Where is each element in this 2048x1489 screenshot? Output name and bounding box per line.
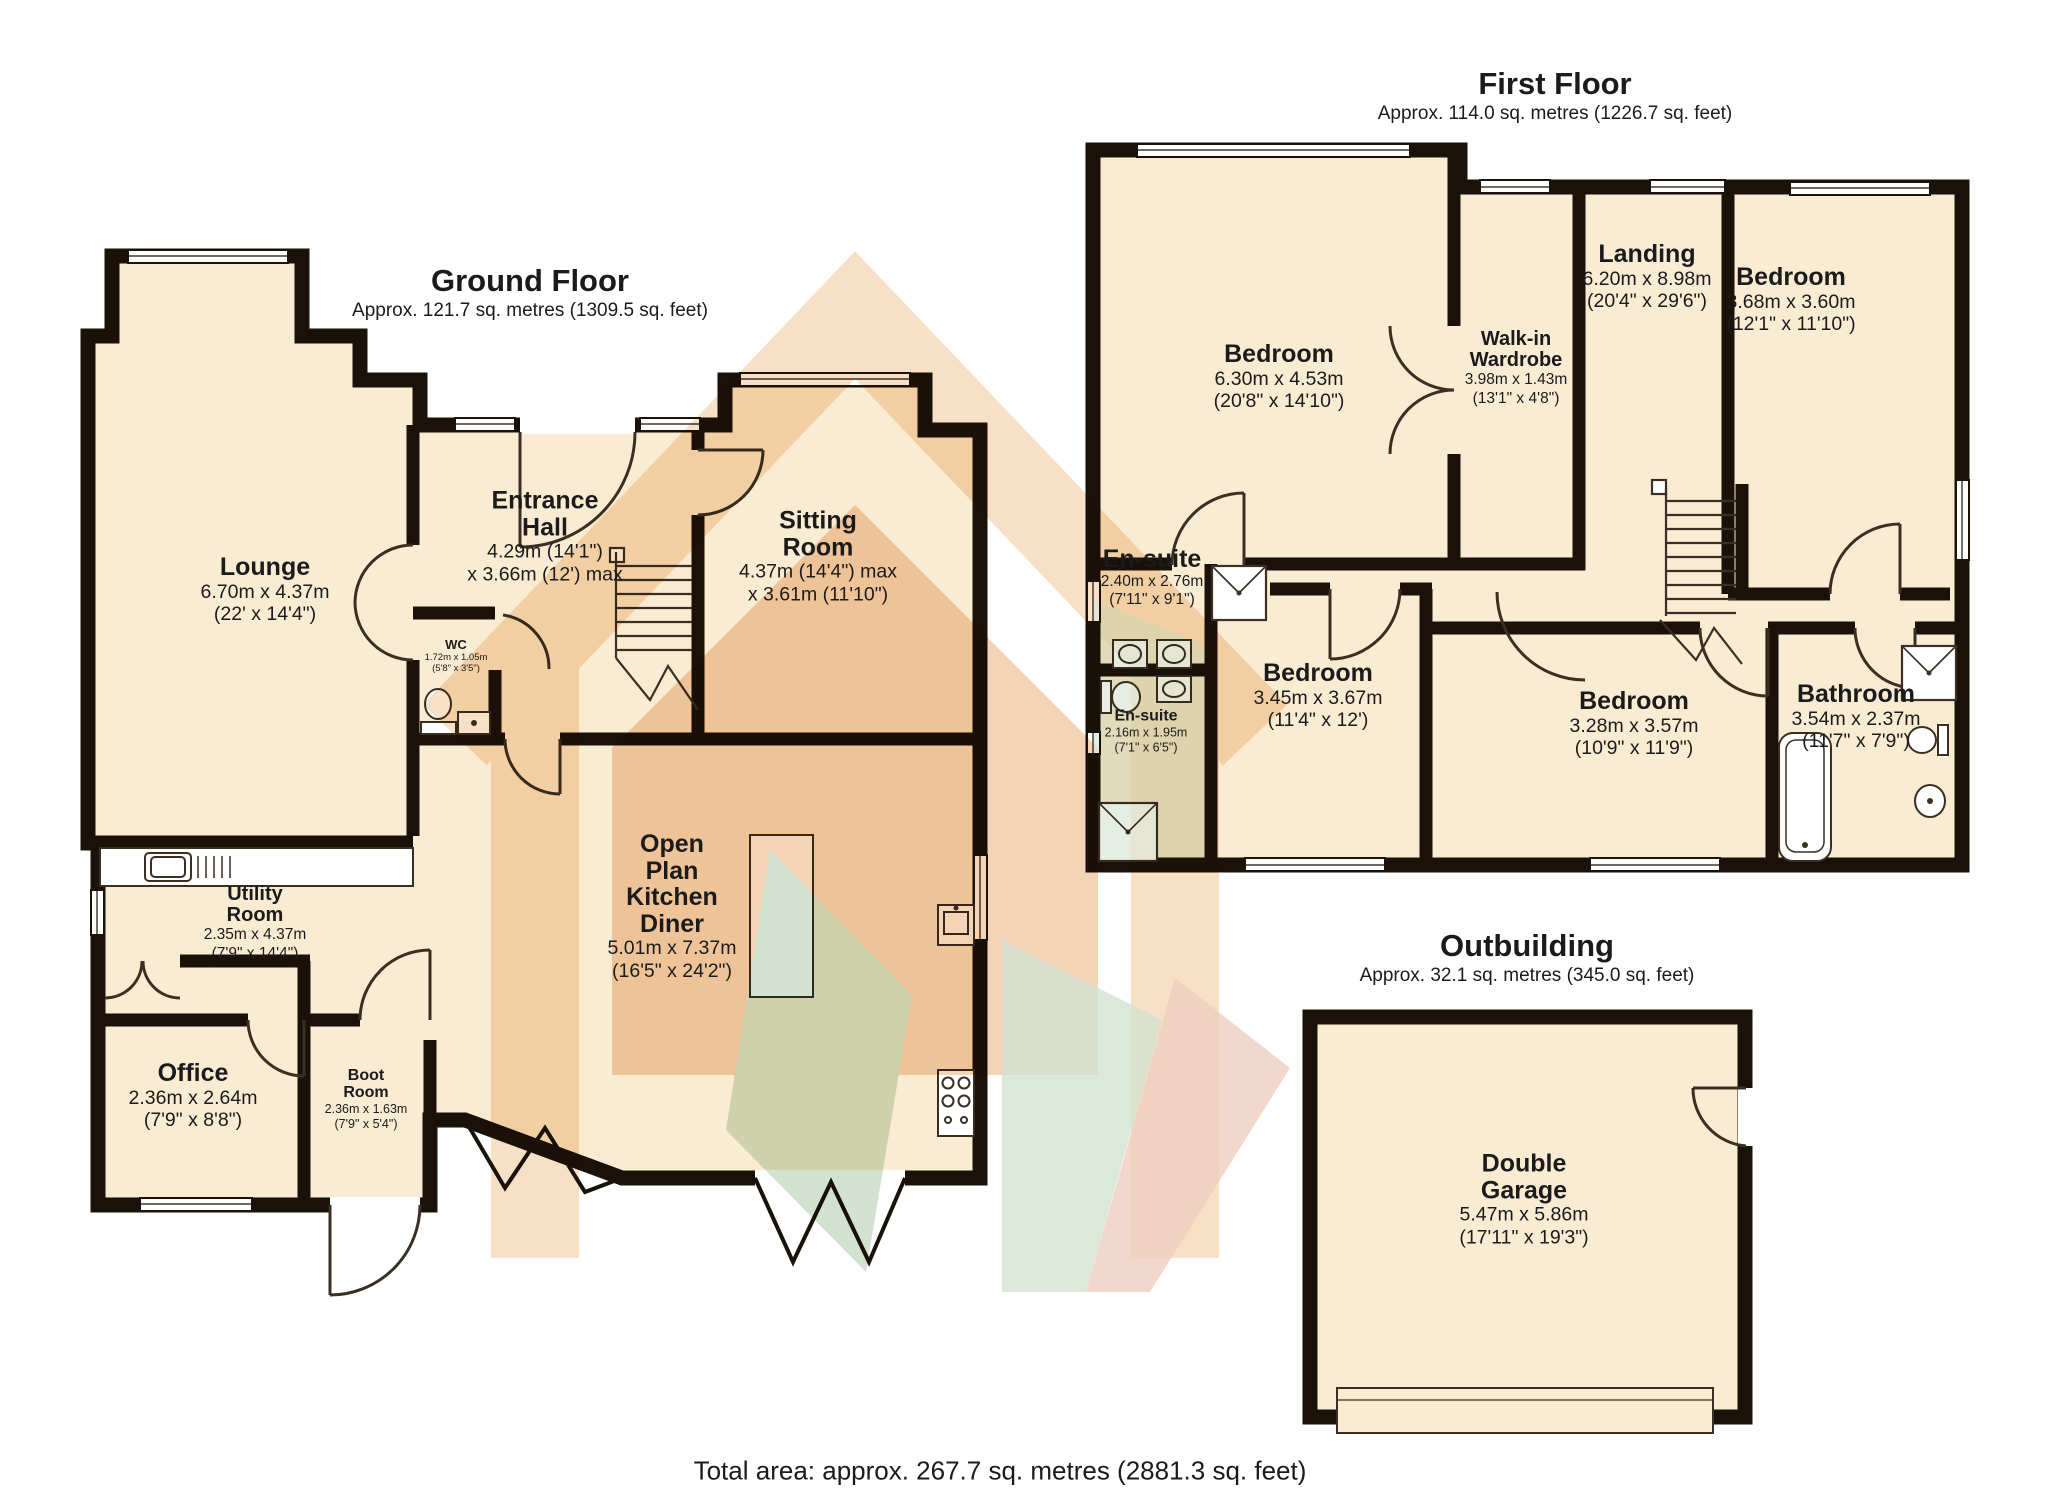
- room-label-bathroom: Bathroom 3.54m x 2.37m (11'7" x 7'9"): [1792, 681, 1921, 753]
- room-dim-imperial: (5'8" x 3'5"): [432, 663, 480, 674]
- room-name: Utility Room: [210, 884, 300, 926]
- room-name: Walk-in Wardrobe: [1461, 329, 1571, 371]
- room-dim-metric: 6.30m x 4.53m: [1215, 367, 1344, 390]
- room-name: En-suite: [1103, 546, 1202, 573]
- first-floor-title: First Floor Approx. 114.0 sq. metres (12…: [1378, 66, 1733, 126]
- room-name: En-suite: [1114, 709, 1177, 726]
- floorplan-page: Ground Floor Approx. 121.7 sq. metres (1…: [0, 0, 2048, 1489]
- room-label-landing: Landing 6.20m x 8.98m (20'4" x 29'6"): [1583, 241, 1712, 313]
- room-dim-metric: 1.72m x 1.05m: [425, 651, 488, 662]
- room-dim-metric: 2.16m x 1.95m: [1105, 725, 1188, 740]
- garage-door: [1337, 1388, 1713, 1433]
- outbuilding-title: Outbuilding Approx. 32.1 sq. metres (345…: [1360, 928, 1695, 988]
- floor-title-text: Outbuilding: [1440, 928, 1614, 964]
- room-name: Lounge: [220, 554, 310, 581]
- floor-subtitle-text: Approx. 32.1 sq. metres (345.0 sq. feet): [1360, 963, 1695, 988]
- room-dim-metric: 2.40m x 2.76m: [1101, 573, 1204, 592]
- room-dim-metric: 5.47m x 5.86m: [1460, 1204, 1589, 1227]
- room-dim-metric: 6.20m x 8.98m: [1583, 267, 1712, 290]
- room-dim-imperial: (10'9" x 11'9"): [1575, 737, 1694, 760]
- garage-door-opening: [1738, 1088, 1754, 1146]
- room-dim-metric: 3.28m x 3.57m: [1570, 714, 1699, 737]
- room-dim-metric: 5.01m x 7.37m: [608, 937, 737, 960]
- room-name: Bedroom: [1736, 264, 1846, 291]
- room-label-sitting-room: Sitting Room 4.37m (14'4") max x 3.61m (…: [739, 508, 897, 607]
- room-dim-metric: 2.36m x 2.64m: [129, 1086, 258, 1109]
- room-label-bedroom1: Bedroom 6.30m x 4.53m (20'8" x 14'10"): [1214, 341, 1345, 413]
- room-dim-metric: 2.36m x 1.63m: [325, 1102, 408, 1117]
- room-dim-metric: 3.98m x 1.43m: [1465, 372, 1568, 391]
- utility-counter: [100, 848, 413, 886]
- room-dim-imperial: x 3.61m (11'10"): [748, 584, 888, 607]
- room-name: Office: [158, 1060, 229, 1087]
- room-name: Open Plan Kitchen Diner: [619, 831, 724, 937]
- floor-subtitle-text: Approx. 114.0 sq. metres (1226.7 sq. fee…: [1378, 101, 1733, 126]
- room-label-bedroom3: Bedroom 3.45m x 3.67m (11'4" x 12'): [1254, 660, 1383, 732]
- room-label-bedroom2: Bedroom 3.68m x 3.60m (12'1" x 11'10"): [1726, 264, 1855, 336]
- floorplan-drawing: [0, 0, 2048, 1489]
- room-dim-imperial: (20'8" x 14'10"): [1214, 390, 1345, 413]
- room-dim-imperial: x 3.66m (12') max: [467, 564, 622, 587]
- room-dim-imperial: (11'7" x 7'9"): [1802, 730, 1910, 753]
- ground-floor-title: Ground Floor Approx. 121.7 sq. metres (1…: [352, 263, 708, 323]
- floor-title-text: Ground Floor: [431, 263, 629, 299]
- room-name: Bedroom: [1224, 341, 1334, 368]
- room-name: Boot Room: [336, 1068, 396, 1102]
- room-dim-imperial: (12'1" x 11'10"): [1726, 313, 1855, 336]
- room-dim-imperial: (7'11" x 9'1"): [1109, 591, 1195, 610]
- room-label-bedroom4: Bedroom 3.28m x 3.57m (10'9" x 11'9"): [1570, 688, 1699, 760]
- room-dim-metric: 3.45m x 3.67m: [1254, 686, 1383, 709]
- room-label-utility: Utility Room 2.35m x 4.37m (7'9" x 14'4"…: [204, 884, 307, 964]
- room-dim-metric: 4.37m (14'4") max: [739, 561, 897, 584]
- room-dim-imperial: (17'11" x 19'3"): [1459, 1227, 1588, 1250]
- room-dim-imperial: (20'4" x 29'6"): [1587, 290, 1707, 313]
- floor-subtitle-text: Approx. 121.7 sq. metres (1309.5 sq. fee…: [352, 298, 708, 323]
- boot-exterior-door: [330, 1205, 420, 1295]
- room-name: Bedroom: [1579, 688, 1689, 715]
- room-name: Bathroom: [1797, 681, 1915, 708]
- total-area-text: Total area: approx. 267.7 sq. metres (28…: [694, 1456, 1307, 1487]
- room-name: Sitting Room: [763, 508, 873, 561]
- room-dim-metric: 6.70m x 4.37m: [201, 580, 330, 603]
- room-label-garage: Double Garage 5.47m x 5.86m (17'11" x 19…: [1459, 1151, 1588, 1250]
- room-dim-imperial: (7'9" x 14'4"): [212, 945, 299, 964]
- boot-door-opening: [330, 1197, 420, 1214]
- room-dim-imperial: (13'1" x 4'8"): [1473, 390, 1560, 409]
- room-label-ensuite1: En-suite 2.40m x 2.76m (7'11" x 9'1"): [1101, 546, 1204, 610]
- room-dim-metric: 4.29m (14'1"): [487, 541, 603, 564]
- toilet: [1938, 725, 1948, 755]
- room-dim-imperial: (7'9" x 5'4"): [335, 1117, 398, 1132]
- room-dim-imperial: (7'1" x 6'5"): [1115, 740, 1178, 755]
- room-name: Landing: [1598, 241, 1695, 268]
- room-dim-imperial: (16'5" x 24'2"): [612, 960, 732, 983]
- room-label-boot-room: Boot Room 2.36m x 1.63m (7'9" x 5'4"): [325, 1068, 408, 1132]
- room-label-entrance-hall: Entrance Hall 4.29m (14'1") x 3.66m (12'…: [467, 488, 622, 587]
- room-name: Bedroom: [1263, 660, 1373, 687]
- room-label-lounge: Lounge 6.70m x 4.37m (22' x 14'4"): [201, 554, 330, 626]
- room-label-ensuite2: En-suite 2.16m x 1.95m (7'1" x 6'5"): [1105, 709, 1188, 756]
- room-label-wardrobe: Walk-in Wardrobe 3.98m x 1.43m (13'1" x …: [1461, 329, 1571, 409]
- floor-title-text: First Floor: [1478, 66, 1631, 102]
- room-dim-imperial: (22' x 14'4"): [214, 603, 316, 626]
- room-dim-metric: 3.68m x 3.60m: [1727, 290, 1856, 313]
- room-dim-metric: 3.54m x 2.37m: [1792, 707, 1921, 730]
- room-name: Entrance Hall: [477, 488, 612, 541]
- room-name: Double Garage: [1469, 1151, 1579, 1204]
- room-dim-imperial: (7'9" x 8'8"): [144, 1109, 242, 1132]
- room-label-office: Office 2.36m x 2.64m (7'9" x 8'8"): [129, 1060, 258, 1132]
- room-label-wc: WC 1.72m x 1.05m (5'8" x 3'5"): [425, 638, 488, 674]
- first-floor-plan: [1087, 144, 1969, 871]
- room-label-kitchen: Open Plan Kitchen Diner 5.01m x 7.37m (1…: [608, 831, 737, 983]
- room-dim-metric: 2.35m x 4.37m: [204, 927, 307, 946]
- room-dim-imperial: (11'4" x 12'): [1268, 709, 1369, 732]
- front-door-opening: [520, 416, 635, 434]
- room-name: WC: [445, 638, 467, 652]
